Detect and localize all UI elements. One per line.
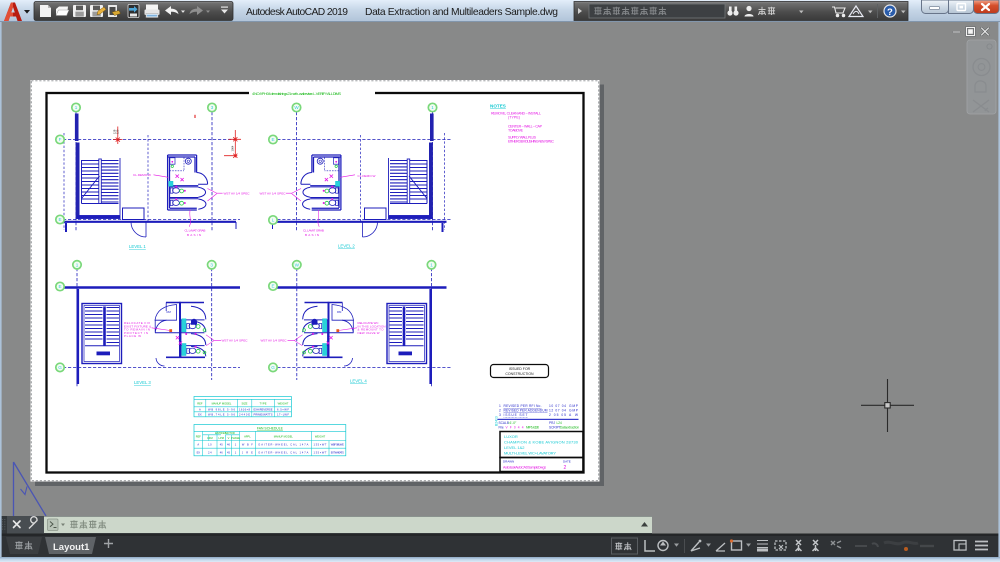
svg-text:ISSUE SET: ISSUE SET	[504, 413, 528, 417]
svg-text:EX: EX	[197, 450, 201, 454]
svg-text:WBF 98UWE: WBF 98UWE	[331, 443, 344, 447]
svg-text:SCRIPT: SCRIPT	[549, 425, 561, 429]
svg-text:3: 3	[210, 263, 213, 268]
svg-text:1: 1	[430, 263, 433, 268]
svg-text:E: E	[271, 137, 274, 142]
svg-text:LUXOR: LUXOR	[504, 434, 518, 439]
svg-text:Autodesk AutoCAD 2019: Autodesk AutoCAD 2019	[246, 7, 348, 18]
svg-text:A: A	[199, 408, 201, 412]
svg-text:CHAMPION & KOBE AVIGNON 28730: CHAMPION & KOBE AVIGNON 28730	[504, 440, 579, 445]
svg-text:1: 1	[431, 105, 434, 110]
svg-text:E: E	[271, 284, 274, 289]
svg-text:E: E	[58, 217, 61, 222]
svg-text:E: E	[58, 284, 61, 289]
svg-text:REF: REF	[196, 434, 202, 438]
svg-text:LEVEL 3: LEVEL 3	[134, 380, 151, 385]
svg-text:V: V	[228, 436, 230, 440]
svg-text:EX: EX	[198, 413, 202, 417]
svg-text:4 NO.9 PH 04 demolishings 21 n: 4 NO.9 PH 04 demolishings 21 north–wall …	[252, 91, 341, 96]
svg-text:AW: AW	[569, 413, 579, 417]
svg-text:EXH/REVERSE: EXH/REVERSE	[254, 408, 273, 412]
svg-text:TO ABOVE: TO ABOVE	[508, 129, 524, 133]
svg-text:EITHER DEMOLISHING NEW SPEC: EITHER DEMOLISHING NEW SPEC	[508, 140, 554, 144]
svg-text:RM: RM	[337, 310, 342, 314]
svg-text:LEVEL 4: LEVEL 4	[350, 379, 367, 384]
svg-text:CL LAVAT GRAB: CL LAVAT GRAB	[303, 229, 324, 233]
svg-text:SIZE: SIZE	[242, 401, 248, 405]
svg-text:DATE: DATE	[563, 460, 571, 464]
svg-text:WB 98LE 5-96: WB 98LE 5-96	[208, 408, 236, 412]
svg-text:1616×8: 1616×8	[239, 408, 251, 412]
svg-text:LEVEL 1&2: LEVEL 1&2	[504, 445, 525, 450]
svg-text:PRIME/WATTS: PRIME/WATTS	[254, 413, 273, 417]
svg-text:GMP: GMP	[569, 404, 579, 408]
svg-text:REVISED PER RFI No.: REVISED PER RFI No.	[504, 404, 542, 408]
svg-text:135×WT: 135×WT	[314, 450, 327, 454]
svg-text:WST AV 1/4 SPEC: WST AV 1/4 SPEC	[222, 338, 249, 342]
svg-text:120: 120	[116, 129, 120, 134]
svg-text:REF: REF	[197, 401, 203, 405]
svg-text:RM: RM	[167, 310, 172, 314]
svg-text:12 07 04: 12 07 04	[549, 409, 566, 413]
svg-text:A: A	[197, 443, 199, 447]
svg-text:1: 1	[75, 105, 78, 110]
svg-text:LPM: LPM	[219, 436, 224, 440]
svg-text:1: 1	[499, 404, 501, 408]
svg-text:WST AV 1/4 SPEC: WST AV 1/4 SPEC	[260, 191, 287, 195]
svg-text:NEW VALVE W: NEW VALVE W	[358, 331, 380, 335]
svg-text:G: G	[58, 365, 62, 370]
svg-text:ISSUED FOR: ISSUED FOR	[509, 367, 531, 371]
svg-text:10 07 04: 10 07 04	[549, 404, 566, 408]
svg-text:3: 3	[499, 413, 501, 417]
svg-text:F: F	[59, 137, 62, 142]
svg-text:WEIGHT: WEIGHT	[315, 434, 326, 438]
svg-text:Dataextraction: Dataextraction	[560, 425, 579, 429]
svg-text:2440E: 2440E	[239, 413, 250, 417]
svg-text:3: 3	[211, 105, 214, 110]
svg-text:2.4: 2.4	[208, 450, 212, 454]
svg-text:CL LAVAT GRAB: CL LAVAT GRAB	[185, 229, 206, 233]
svg-text:6.5×WF: 6.5×WF	[277, 408, 289, 412]
svg-text:PHASE: PHASE	[231, 436, 240, 440]
svg-text:2: 2	[499, 409, 501, 413]
svg-text:L: L	[272, 218, 275, 223]
svg-text:CONSTRUCTION: CONSTRUCTION	[505, 372, 534, 376]
svg-text:1.0: 1.0	[208, 443, 212, 447]
svg-text:FAN SCHEDULE: FAN SCHEDULE	[257, 427, 284, 431]
svg-text:PLACE W: PLACE W	[124, 334, 141, 338]
svg-text:MULTI-LEVEL WC+LAVATORY: MULTI-LEVEL WC+LAVATORY	[504, 451, 556, 456]
svg-text:REVISED PER ADDENDUM: REVISED PER ADDENDUM	[504, 409, 548, 413]
svg-text:1064: 1064	[231, 145, 235, 151]
svg-text:WST AV 1/4 SPEC: WST AV 1/4 SPEC	[261, 338, 288, 342]
svg-text:(TYPE): (TYPE)	[508, 116, 520, 120]
svg-text:APPL: APPL	[244, 434, 251, 438]
svg-text:MFP1–E100: MFP1–E100	[526, 425, 539, 429]
svg-text:AutodeskAutoCADSampleDwgs: AutodeskAutoCADSampleDwgs	[503, 466, 546, 470]
svg-text:MANUF MODEL: MANUF MODEL	[274, 434, 294, 438]
svg-text:2: 2	[564, 465, 567, 471]
svg-text:WB,74LE 5-96: WB,74LE 5-96	[208, 413, 236, 417]
svg-text:CL.DEMO.W: CL.DEMO.W	[133, 173, 151, 177]
svg-text:NOTES: NOTES	[490, 104, 506, 109]
svg-text:135×WT: 135×WT	[314, 443, 327, 447]
svg-text:LEVEL 1: LEVEL 1	[129, 244, 146, 249]
svg-text:MANUF MODEL: MANUF MODEL	[212, 401, 232, 405]
svg-text:WEIGHT: WEIGHT	[278, 401, 289, 405]
svg-text:W: W	[294, 105, 299, 110]
svg-text:WST AV 1/4 SPEC: WST AV 1/4 SPEC	[224, 191, 251, 195]
svg-text:GAITER-WHEEL CAL 147A: GAITER-WHEEL CAL 147A	[258, 443, 308, 447]
svg-text:TYPE: TYPE	[259, 401, 266, 405]
svg-text:CL.DEMO.W: CL.DEMO.W	[358, 174, 376, 178]
svg-text:Layout1: Layout1	[53, 542, 90, 553]
svg-text:G: G	[271, 365, 275, 370]
svg-text:GMP: GMP	[569, 409, 579, 413]
svg-text:W: W	[295, 263, 300, 268]
svg-text:Data Extraction and Multileade: Data Extraction and Multileaders Sample.…	[365, 7, 558, 18]
svg-text:?: ?	[887, 7, 893, 18]
svg-text:File: File	[499, 425, 504, 429]
svg-text:GAITER-WHEEL CAL 147A: GAITER-WHEEL CAL 147A	[258, 450, 308, 454]
svg-text:WBF: WBF	[242, 443, 253, 447]
svg-text:MOTOR: MOTOR	[225, 431, 235, 435]
svg-text:2 05 05: 2 05 05	[549, 413, 566, 417]
svg-text:EXT WHEATS: EXT WHEATS	[331, 450, 344, 454]
svg-text:17–LWF: 17–LWF	[277, 413, 289, 417]
svg-text:LEVEL 2: LEVEL 2	[338, 244, 355, 249]
svg-text:1: 1	[76, 263, 79, 268]
svg-text:CFM: CFM	[207, 436, 213, 440]
svg-text:DRAWN: DRAWN	[503, 460, 514, 464]
